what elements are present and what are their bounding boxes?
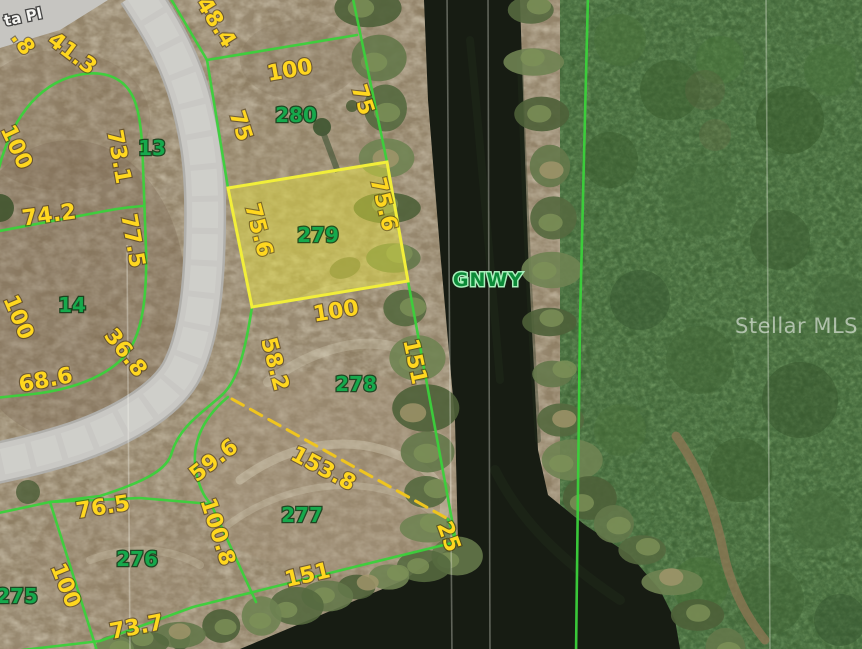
lot-number-13: 13: [138, 136, 166, 160]
lot-number-276: 276: [116, 547, 158, 571]
watermark: Stellar MLS: [735, 314, 858, 338]
waterway-label: GNWY: [453, 269, 523, 291]
lot-number-280: 280: [275, 103, 317, 127]
lot-number-278: 278: [335, 372, 377, 396]
aerial-plat-map: ta Pl 48.4 100 75 75 .8 41.3 73.1 100 74…: [0, 0, 862, 649]
lot-number-275: 275: [0, 584, 38, 608]
map-canvas: ta Pl 48.4 100 75 75 .8 41.3 73.1 100 74…: [0, 0, 862, 649]
lot-number-279: 279: [297, 223, 339, 247]
lot-number-277: 277: [281, 503, 323, 527]
lot-number-14: 14: [58, 293, 86, 317]
